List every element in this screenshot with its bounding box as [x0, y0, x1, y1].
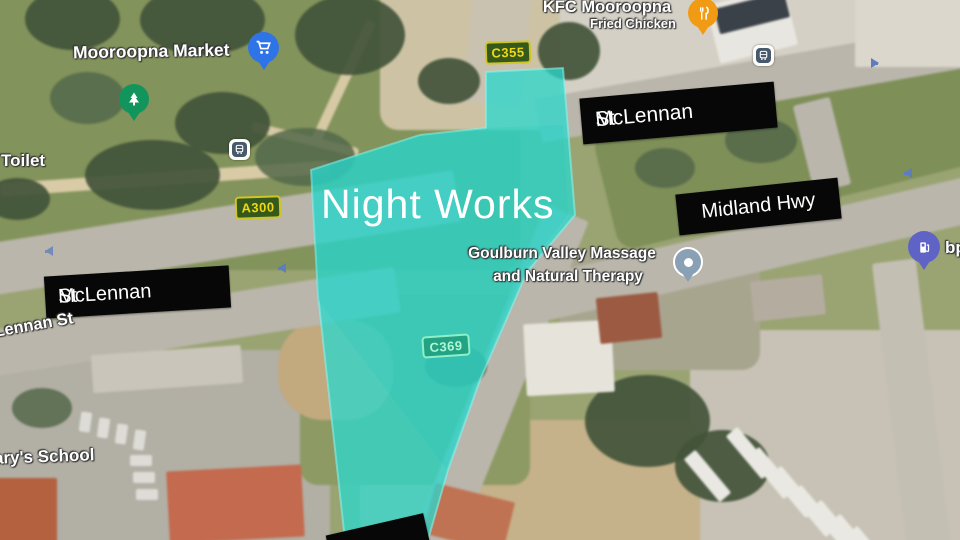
poi-label-kfc-subtitle: Fried Chicken	[586, 16, 680, 31]
poi-label-kfc: KFC Mooroopna	[536, 0, 678, 17]
fuel-station-pin[interactable]	[908, 231, 940, 263]
generic-place-pin[interactable]	[673, 247, 703, 277]
poi-label-mooroopna-market: Mooroopna Market	[73, 40, 230, 64]
road-name: Midland Hwy	[700, 189, 816, 224]
shopping-cart-pin[interactable]	[248, 32, 279, 63]
route-shield-c355: C355	[485, 40, 532, 65]
restaurant-icon	[696, 6, 711, 21]
road-suffix: St	[594, 107, 616, 133]
poi-label-massage-line2: and Natural Therapy	[468, 268, 668, 286]
night-works-label: Night Works	[321, 181, 555, 228]
road-suffix: St	[57, 284, 77, 308]
bus-stop-icon[interactable]	[229, 139, 250, 160]
street-label-toilet: Toilet	[1, 151, 45, 171]
route-shield-a300: A300	[235, 195, 282, 220]
shopping-cart-icon	[255, 39, 272, 56]
fuel-pump-icon	[917, 240, 932, 255]
map-view[interactable]: Night Works C355 A300 C369 McLennan St M…	[0, 0, 960, 540]
place-dot-icon	[684, 258, 693, 267]
route-shield-c369: C369	[421, 333, 470, 358]
bus-icon	[756, 48, 771, 63]
poi-label-massage-line1: Goulburn Valley Massage	[450, 245, 674, 263]
park-tree-pin[interactable]	[119, 84, 149, 114]
poi-label-bp: bp	[945, 238, 960, 258]
bus-stop-icon[interactable]	[753, 45, 774, 66]
street-label-school: ary's School	[0, 445, 95, 468]
bus-icon	[232, 142, 247, 157]
tree-icon	[126, 91, 142, 107]
